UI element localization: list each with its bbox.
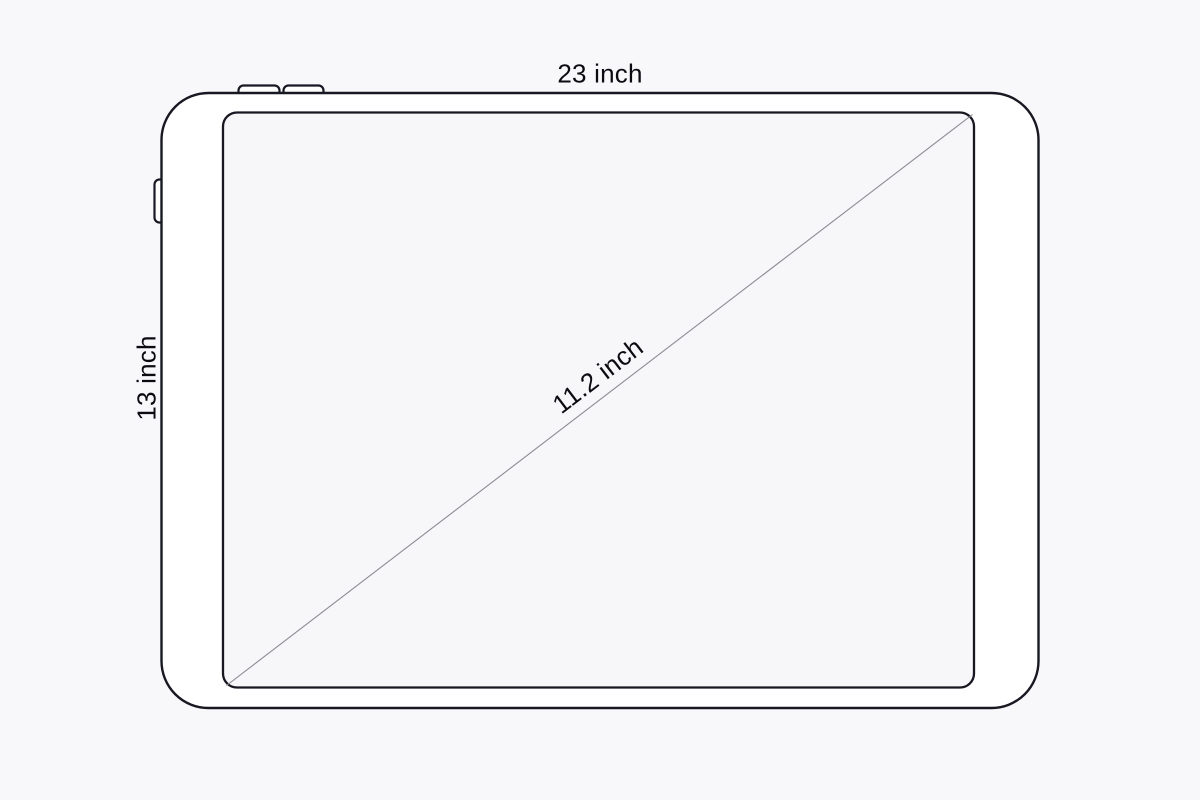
tablet-dimensions-diagram: 23 inch 13 inch 11.2 inch (0, 0, 1200, 800)
width-dimension-label: 23 inch (557, 59, 642, 90)
device-outline-drawing (0, 0, 1200, 800)
tablet-screen (223, 113, 974, 688)
height-dimension-label: 13 inch (132, 335, 163, 420)
